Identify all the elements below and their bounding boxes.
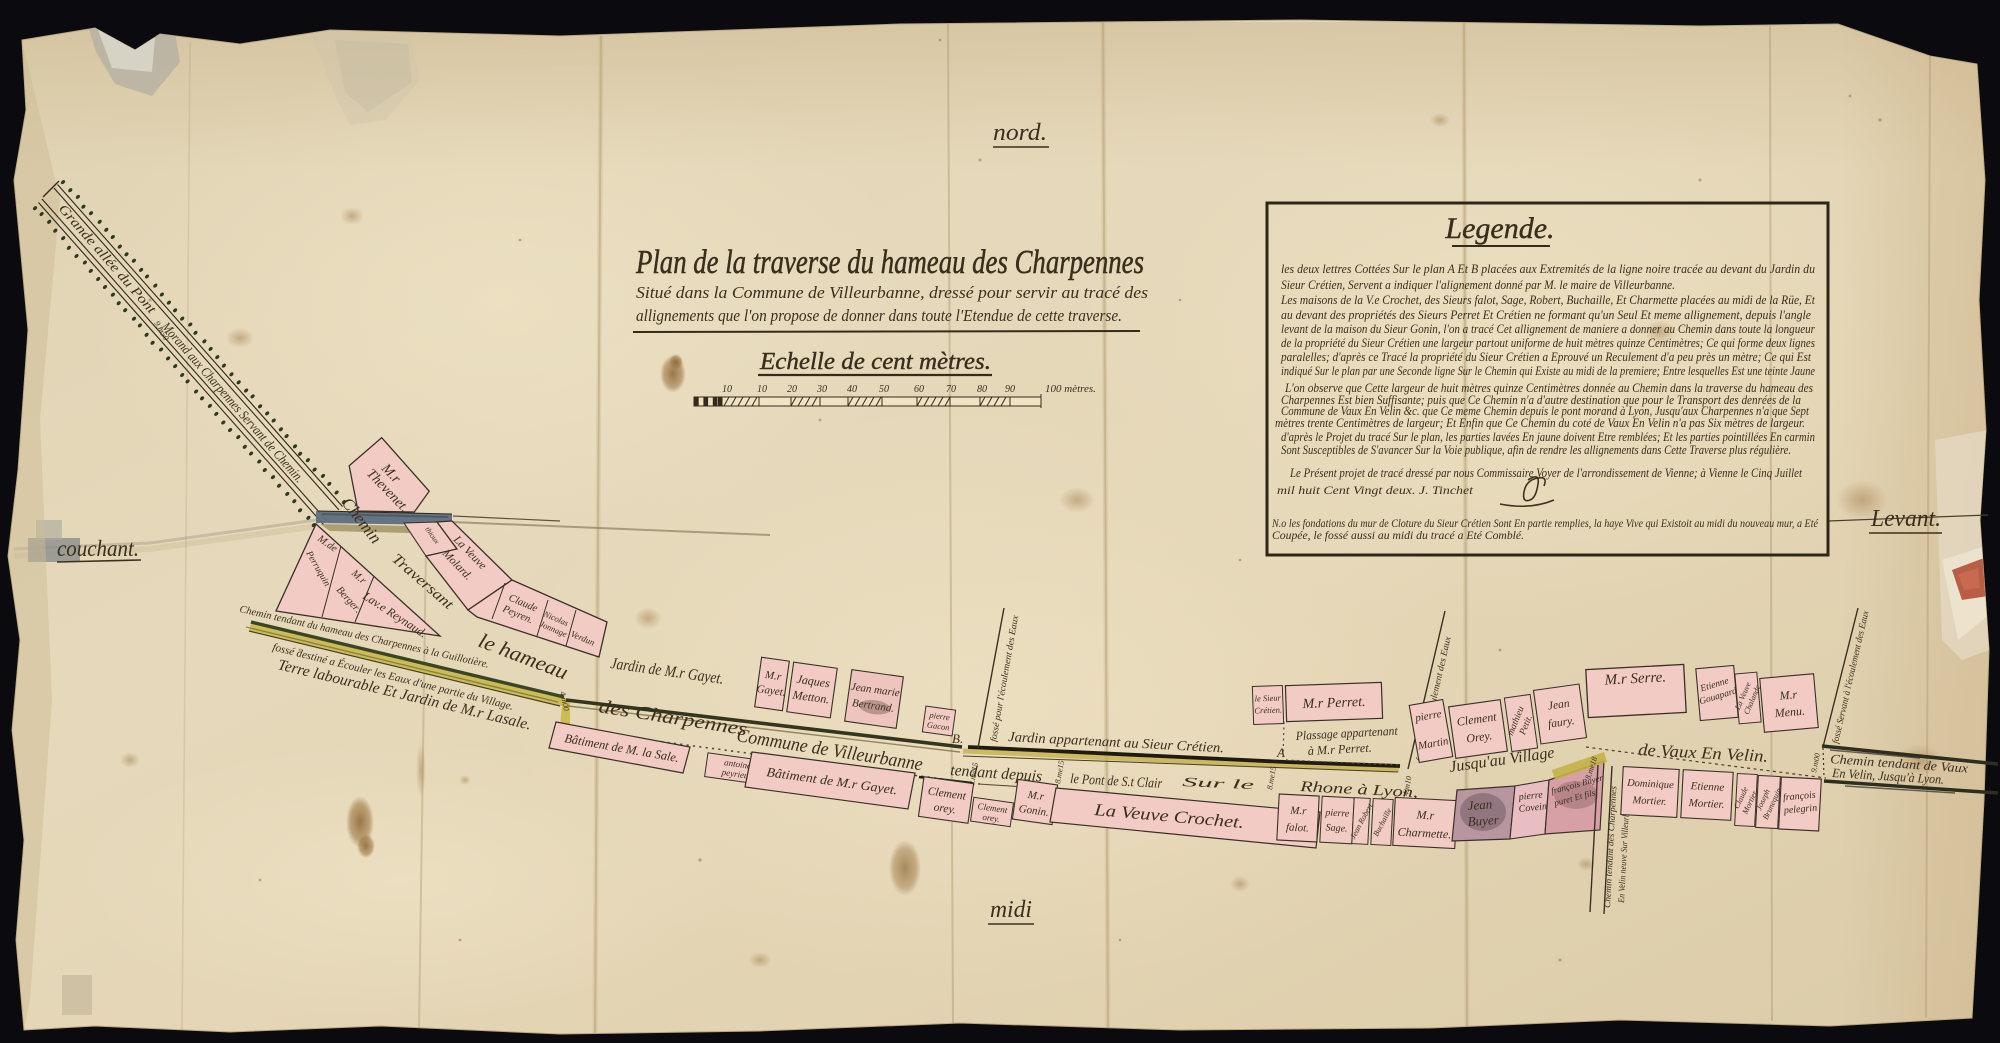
svg-text:M.r: M.r bbox=[763, 669, 782, 683]
svg-text:Echelle de cent mètres.: Echelle de cent mètres. bbox=[759, 349, 991, 375]
svg-text:Buyer: Buyer bbox=[1467, 812, 1500, 829]
svg-text:Mortier.: Mortier. bbox=[1687, 797, 1724, 811]
svg-text:couchant.: couchant. bbox=[57, 536, 139, 561]
svg-text:levant de la maison du Sieur G: levant de la maison du Sieur Gonin, l'on… bbox=[1281, 322, 1815, 336]
svg-text:60: 60 bbox=[914, 384, 924, 395]
svg-text:M.r: M.r bbox=[1415, 808, 1435, 823]
svg-text:Crétien.: Crétien. bbox=[1254, 705, 1282, 716]
svg-text:Sur le: Sur le bbox=[1182, 774, 1255, 792]
svg-text:Charmette.: Charmette. bbox=[1397, 825, 1451, 842]
svg-text:Mortier.: Mortier. bbox=[1631, 795, 1667, 808]
svg-text:M.r Serre.: M.r Serre. bbox=[1603, 669, 1666, 688]
svg-text:Les maisons de la V.e Crochet,: Les maisons de la V.e Crochet, des Sieur… bbox=[1280, 293, 1815, 307]
svg-text:pierre: pierre bbox=[1324, 807, 1350, 819]
svg-text:midi: midi bbox=[990, 897, 1032, 923]
svg-text:B.: B. bbox=[952, 731, 963, 746]
svg-text:mil huit Cent Vingt deux. J.: mil huit Cent Vingt deux. J. Tinchet bbox=[1277, 483, 1474, 497]
svg-text:au devant des propriétés des S: au devant des propriétés des Sieurs Perr… bbox=[1281, 308, 1811, 322]
svg-text:Etienne: Etienne bbox=[1689, 780, 1724, 794]
svg-text:Coupée, le fossé aussi au midi: Coupée, le fossé aussi au midi du tracé … bbox=[1272, 529, 1524, 542]
svg-text:Levant.: Levant. bbox=[1870, 506, 1941, 532]
svg-text:80: 80 bbox=[977, 384, 987, 395]
svg-text:90: 90 bbox=[1005, 384, 1015, 395]
svg-text:falot.: falot. bbox=[1286, 821, 1310, 834]
svg-text:70: 70 bbox=[946, 384, 956, 395]
svg-text:Plan de la traverse du hameau: Plan de la traverse du hameau des Charpe… bbox=[635, 244, 1144, 281]
svg-text:Sieur Crétien, Servent a indiq: Sieur Crétien, Servent a indiquer l'alig… bbox=[1281, 278, 1675, 292]
svg-text:M.r: M.r bbox=[1026, 789, 1045, 803]
svg-text:indiqué Sur le plan par une Se: indiqué Sur le plan par une Seconde lign… bbox=[1281, 364, 1815, 378]
svg-text:10: 10 bbox=[757, 384, 767, 395]
svg-text:A: A bbox=[1276, 745, 1285, 760]
svg-text:30: 30 bbox=[816, 384, 827, 395]
svg-text:Sage.: Sage. bbox=[1325, 822, 1347, 834]
svg-text:M.r Perret.: M.r Perret. bbox=[1301, 695, 1365, 712]
svg-text:100 mètres.: 100 mètres. bbox=[1045, 383, 1096, 395]
svg-text:M.r: M.r bbox=[1289, 805, 1308, 818]
svg-text:le Sieur: le Sieur bbox=[1254, 693, 1281, 704]
svg-text:d'après le Projet du tracé Sur: d'après le Projet du tracé Sur le plan, … bbox=[1281, 430, 1815, 444]
svg-text:mètres trente Centimètres de l: mètres trente Centimètres de largeur; Et… bbox=[1275, 416, 1805, 430]
svg-text:50: 50 bbox=[879, 384, 889, 395]
svg-text:Sont Susceptibles de S'avancer: Sont Susceptibles de S'avancer Sur la Vo… bbox=[1281, 443, 1791, 457]
svg-text:M.r: M.r bbox=[1778, 687, 1798, 703]
svg-text:Situé dans la Commune de Ville: Situé dans la Commune de Villeurbanne, d… bbox=[636, 283, 1148, 302]
svg-text:Jean: Jean bbox=[1467, 796, 1493, 813]
svg-text:paralelles; d'après ce Tracé l: paralelles; d'après ce Tracé la propriét… bbox=[1280, 350, 1811, 364]
svg-text:Legende.: Legende. bbox=[1444, 212, 1554, 245]
svg-text:40: 40 bbox=[847, 384, 857, 395]
svg-text:20: 20 bbox=[787, 384, 797, 395]
svg-text:Le Présent projet de tracé dre: Le Présent projet de tracé dressé par no… bbox=[1289, 466, 1802, 480]
svg-text:10: 10 bbox=[722, 384, 732, 395]
svg-text:les deux lettres Cottées Sur l: les deux lettres Cottées Sur le plan A E… bbox=[1281, 262, 1815, 276]
svg-text:de la propriété du Sieur Créti: de la propriété du Sieur Crétien une lar… bbox=[1281, 336, 1815, 350]
svg-text:Menu.: Menu. bbox=[1773, 704, 1805, 721]
svg-text:allignements que l'on propose: allignements que l'on propose de donner … bbox=[636, 306, 1122, 325]
svg-text:nord.: nord. bbox=[993, 120, 1047, 146]
